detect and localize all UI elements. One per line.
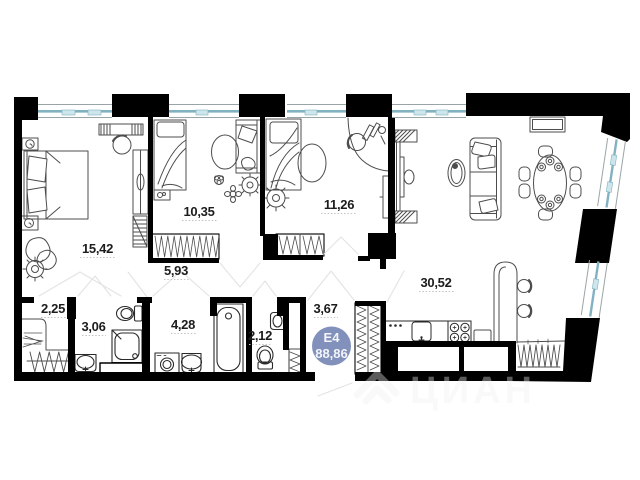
svg-text:4,28: 4,28	[171, 317, 195, 332]
svg-text:30,52: 30,52	[420, 275, 451, 290]
svg-text:2,12: 2,12	[248, 328, 272, 343]
svg-text:5,93: 5,93	[164, 263, 188, 278]
svg-text:ЦИАН: ЦИАН	[410, 370, 536, 412]
svg-text:15,42: 15,42	[82, 241, 113, 256]
svg-text:88,86: 88,86	[315, 346, 348, 361]
svg-text:E4: E4	[324, 330, 341, 345]
svg-text:11,26: 11,26	[324, 197, 354, 212]
svg-text:2,25: 2,25	[41, 301, 65, 316]
svg-text:10,35: 10,35	[183, 204, 214, 219]
svg-text:3,67: 3,67	[313, 301, 337, 316]
svg-text:3,06: 3,06	[81, 319, 105, 334]
